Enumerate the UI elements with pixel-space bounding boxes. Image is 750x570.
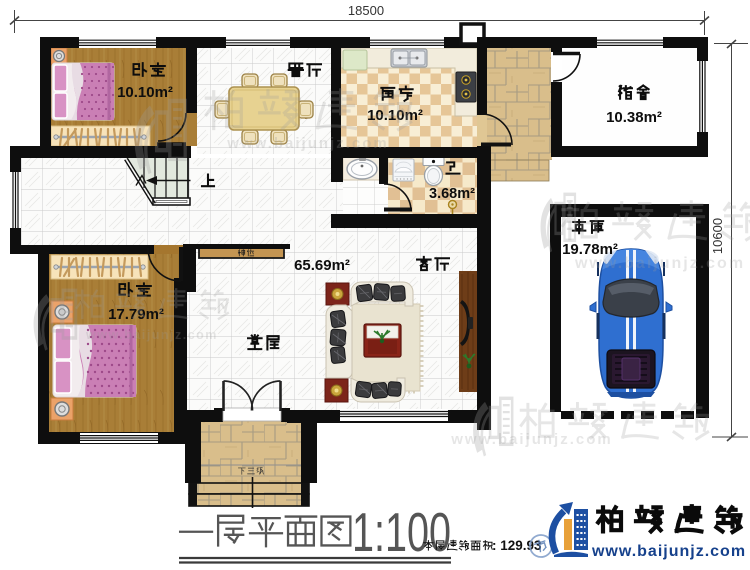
svg-text:10600: 10600	[710, 218, 725, 254]
svg-text:www.baijunjz.com: www.baijunjz.com	[450, 431, 612, 448]
svg-text:www.baijunjz.com: www.baijunjz.com	[85, 328, 218, 342]
svg-text:3.68m²: 3.68m²	[429, 186, 475, 202]
svg-text:18500: 18500	[348, 3, 384, 18]
svg-text:: 129.93: : 129.93	[492, 538, 542, 553]
svg-text:www.baijunjz.com: www.baijunjz.com	[574, 255, 745, 272]
svg-text:10.38m²: 10.38m²	[606, 109, 662, 126]
svg-text:www.baijunjz.com: www.baijunjz.com	[226, 135, 388, 152]
svg-text:65.69m²: 65.69m²	[294, 257, 350, 274]
svg-text:1:100: 1:100	[352, 503, 451, 564]
svg-text:10.10m²: 10.10m²	[117, 84, 173, 101]
svg-text:www.baijunjz.com: www.baijunjz.com	[591, 543, 746, 560]
